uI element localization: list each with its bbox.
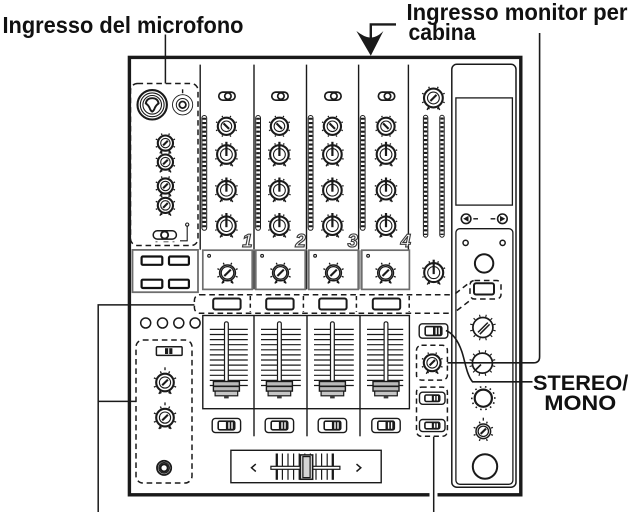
svg-text:MONO: MONO	[544, 392, 616, 415]
svg-text:Ingresso del microfono: Ingresso del microfono	[3, 12, 244, 38]
svg-text:Ingresso monitor percabina: Ingresso monitor percabina	[407, 0, 628, 45]
